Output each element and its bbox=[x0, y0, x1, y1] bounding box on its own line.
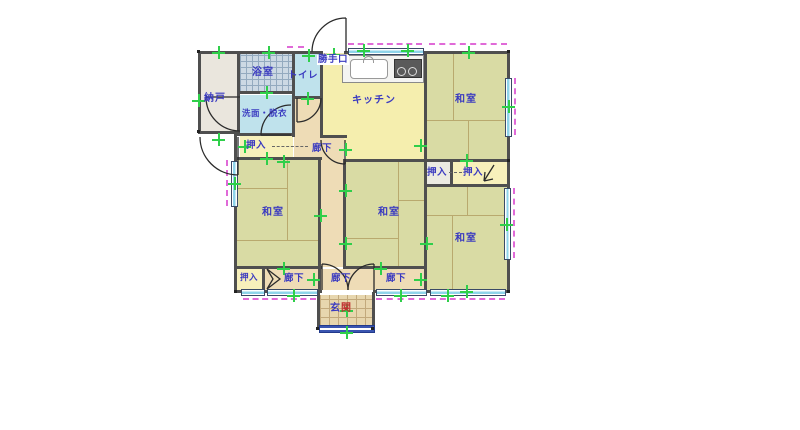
room-label-storage: 納戸 bbox=[204, 94, 226, 104]
window bbox=[430, 289, 506, 296]
wall bbox=[343, 159, 346, 269]
room-label-bath: 浴室 bbox=[252, 68, 274, 78]
wall bbox=[320, 53, 323, 138]
wall bbox=[320, 135, 347, 138]
room-label-toilet: トイレ bbox=[288, 71, 318, 81]
corridor-fill-vertical bbox=[321, 159, 344, 267]
wall bbox=[292, 96, 322, 99]
corner-marker bbox=[197, 130, 200, 133]
wall bbox=[450, 159, 453, 187]
wall bbox=[318, 157, 321, 292]
insulation-dash bbox=[513, 188, 515, 258]
wall bbox=[343, 159, 427, 162]
window bbox=[376, 289, 427, 296]
tatami-line bbox=[452, 215, 453, 290]
room-label-tatami-west: 和室 bbox=[262, 208, 284, 218]
leader-dashes bbox=[449, 172, 462, 173]
room-label-tatami-ne: 和室 bbox=[455, 95, 477, 105]
corridor-label-bottom-left: 廊下 bbox=[284, 274, 304, 284]
window bbox=[241, 289, 265, 296]
wall bbox=[292, 94, 295, 137]
wall bbox=[424, 159, 510, 162]
tatami-line bbox=[427, 120, 507, 121]
stove-burner-icon bbox=[408, 67, 417, 76]
insulation-dash bbox=[348, 43, 422, 45]
corner-marker bbox=[234, 290, 237, 293]
leader-dashes bbox=[272, 146, 308, 147]
room-label-tatami-center: 和室 bbox=[378, 208, 400, 218]
room-kitchen-fill-lower bbox=[346, 144, 424, 160]
corner-marker bbox=[371, 327, 374, 330]
tatami-line bbox=[427, 215, 507, 216]
tatami-line bbox=[453, 53, 454, 120]
wall bbox=[343, 266, 427, 269]
corridor-label-bottom-right: 廊下 bbox=[386, 274, 406, 284]
tatami-line bbox=[398, 200, 424, 201]
wall bbox=[198, 131, 239, 134]
room-label-tatami-se: 和室 bbox=[455, 234, 477, 244]
closet-label-bottom: 押入 bbox=[240, 274, 258, 283]
wall bbox=[234, 266, 322, 269]
wall bbox=[424, 184, 510, 187]
tatami-line bbox=[468, 120, 469, 159]
room-label-backdoor: 勝手口 bbox=[317, 55, 349, 65]
kitchen-backdoor-arc bbox=[312, 18, 346, 52]
wall bbox=[237, 51, 323, 54]
entrance-sliding-door bbox=[319, 325, 375, 333]
insulation-dash bbox=[226, 160, 228, 206]
wall bbox=[240, 91, 294, 94]
wall bbox=[424, 53, 427, 162]
stove-burner-icon bbox=[397, 67, 406, 76]
corridor-label-bottom-center: 廊下 bbox=[331, 274, 351, 284]
entrance-label-char-2: 関 bbox=[341, 303, 352, 314]
closet-label-upper: 押入 bbox=[246, 141, 266, 151]
tatami-line bbox=[237, 188, 287, 189]
corner-marker bbox=[197, 50, 200, 53]
window bbox=[348, 48, 424, 55]
window bbox=[267, 289, 318, 296]
room-label-kitchen: キッチン bbox=[352, 96, 396, 106]
closet-label-right-a: 押入 bbox=[427, 168, 447, 178]
room-label-washroom: 洗面・脱衣 bbox=[242, 110, 287, 119]
room-label-entrance: 玄関 bbox=[330, 304, 352, 314]
wall bbox=[234, 157, 322, 160]
insulation-dash bbox=[514, 78, 516, 135]
wall bbox=[237, 133, 294, 136]
insulation-dash bbox=[243, 298, 316, 300]
corridor-label-upper: 廊下 bbox=[312, 144, 332, 154]
closet-label-right-b: 押入 bbox=[463, 168, 483, 178]
corner-marker bbox=[316, 327, 319, 330]
window bbox=[504, 188, 511, 260]
insulation-dash bbox=[376, 298, 425, 300]
corner-marker bbox=[507, 290, 510, 293]
room-tatami-ne-fill bbox=[427, 53, 507, 159]
wall bbox=[198, 51, 201, 134]
entrance-label-char-1: 玄 bbox=[330, 303, 341, 314]
corner-marker bbox=[507, 50, 510, 53]
grid-mark bbox=[212, 133, 225, 146]
window bbox=[505, 78, 512, 137]
insulation-dash bbox=[287, 46, 304, 48]
wall bbox=[198, 51, 242, 54]
kitchen-faucet-icon bbox=[363, 56, 374, 63]
tatami-line bbox=[237, 240, 318, 241]
window bbox=[231, 161, 238, 207]
tatami-line bbox=[287, 160, 288, 240]
tatami-line bbox=[467, 187, 468, 215]
floor-plan-canvas: 納戸 浴室 トイレ 洗面・脱衣 勝手口 キッチン 和室 和室 和室 和室 押入 … bbox=[0, 0, 800, 430]
wall bbox=[424, 162, 427, 293]
tatami-line bbox=[346, 238, 398, 239]
corner-marker bbox=[507, 159, 510, 162]
insulation-dash bbox=[429, 43, 507, 45]
insulation-dash bbox=[430, 298, 505, 300]
